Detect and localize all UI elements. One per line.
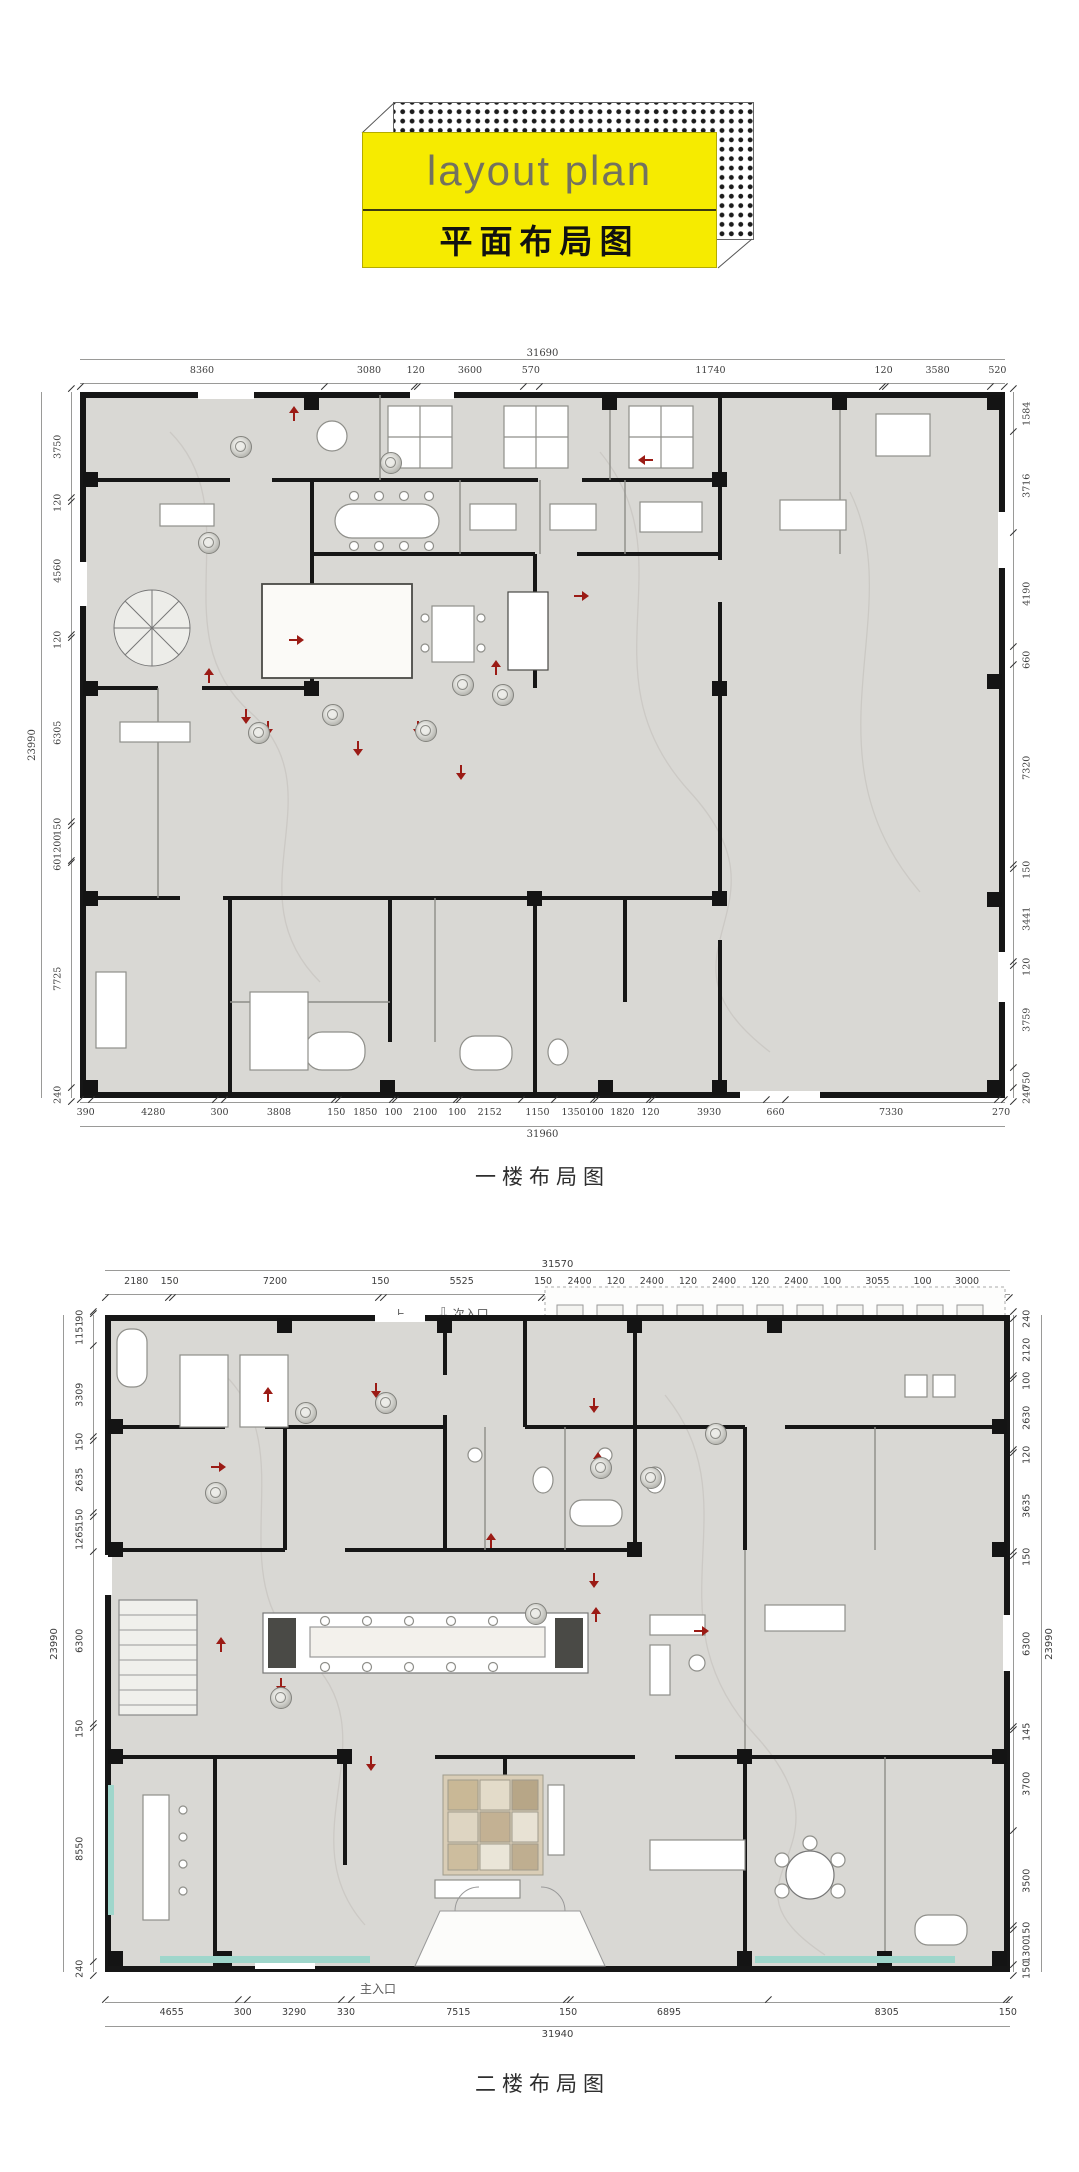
dimension-segment: 150 <box>1006 2003 1010 2025</box>
dim-total-value: 23990 <box>50 1628 60 1660</box>
dimension-segment: 150 <box>1014 1968 1040 1972</box>
dimension-segment: 300 <box>215 1103 224 1125</box>
dim-total-value: 23990 <box>1045 1628 1055 1660</box>
dim-total-top: 31570 <box>105 1254 1010 1271</box>
dimension-segment: 660 <box>1014 650 1040 668</box>
plant-icon <box>452 674 474 696</box>
dimension-value: 1265 <box>75 1525 85 1549</box>
dimension-segment: 300 <box>238 2003 247 2025</box>
dimension-segment: 1584 <box>1014 392 1040 435</box>
dimension-segment: 3808 <box>224 1103 334 1125</box>
dimension-value: 2635 <box>75 1468 85 1492</box>
dimension-value: 3716 <box>1022 474 1032 498</box>
dimension-segment: 3930 <box>652 1103 766 1125</box>
dim-total-top: 31690 <box>80 343 1005 360</box>
flow-arrow-icon <box>490 660 502 676</box>
dimension-value: 520 <box>988 366 1006 376</box>
dimension-segment: 390 <box>80 1103 91 1125</box>
dimension-segment: 11740 <box>539 361 882 383</box>
dim-total-bottom: 31960 <box>80 1126 1005 1143</box>
dim-strip-bottom: 3904280300380815018501002100100215211501… <box>80 1102 1005 1125</box>
dimension-segment: 3500 <box>1014 1834 1040 1929</box>
dim-total-value: 31940 <box>542 2030 574 2040</box>
dimension-segment: 7330 <box>785 1103 997 1125</box>
dimension-value: 3309 <box>75 1382 85 1406</box>
plant-icon <box>270 1687 292 1709</box>
dim-total-value: 31690 <box>527 349 559 359</box>
dimension-segment: 3441 <box>1014 872 1040 966</box>
plant-icon <box>248 722 270 744</box>
dimension-value: 2120 <box>1022 1338 1032 1362</box>
dimension-value: 3808 <box>267 1108 291 1118</box>
dimension-value: 3441 <box>1022 906 1032 930</box>
dimension-segment: 570 <box>523 361 540 383</box>
first-floor-drawing <box>80 392 1005 1098</box>
dimension-value: 8305 <box>875 2008 899 2018</box>
dimension-value: 660 <box>1022 650 1032 668</box>
dimension-value: 4560 <box>53 559 63 583</box>
dimension-segment: 270 <box>997 1103 1005 1125</box>
dimension-segment: 240 <box>67 1965 93 1972</box>
plant-icon <box>640 1467 662 1489</box>
dimension-segment: 7320 <box>1014 668 1040 867</box>
dim-strip-right: 2402120100263012036351506300145370035001… <box>1013 1315 1040 1972</box>
flow-arrow-icon <box>573 590 589 602</box>
dimension-segment: 8360 <box>80 361 324 383</box>
dimension-segment: 2630 <box>1014 1382 1040 1453</box>
dimension-value: 7320 <box>1022 756 1032 780</box>
plant-icon <box>230 436 252 458</box>
dimension-value: 1151 <box>75 1321 85 1345</box>
flow-arrow-icon <box>215 1637 227 1653</box>
dimension-value: 8360 <box>190 366 214 376</box>
dimension-value: 3500 <box>1022 1869 1032 1893</box>
dim-strip-left: 3750120456012063051501200607725240 <box>45 392 72 1098</box>
dimension-segment: 7725 <box>45 866 71 1091</box>
flow-arrow-icon <box>588 1397 600 1413</box>
plant-icon <box>205 1482 227 1504</box>
plant-icon <box>492 684 514 706</box>
plant-icon <box>525 1603 547 1625</box>
dimension-value: 3635 <box>1022 1493 1032 1517</box>
dimension-value: 8550 <box>75 1836 85 1860</box>
dimension-segment: 3635 <box>1014 1456 1040 1555</box>
flow-arrow-icon <box>693 1625 709 1637</box>
dimension-value: 3290 <box>282 2008 306 2018</box>
dimension-value: 3750 <box>53 435 63 459</box>
dimension-segment: 4560 <box>45 505 71 638</box>
dimension-value: 6895 <box>657 2008 681 2018</box>
dimension-segment: 3309 <box>67 1349 93 1440</box>
dimension-segment: 4655 <box>105 2003 238 2025</box>
dimension-value: 11740 <box>695 366 725 376</box>
dim-total-left: 23990 <box>25 392 42 1098</box>
dimension-segment: 6895 <box>570 2003 768 2025</box>
dimension-value: 270 <box>992 1108 1010 1118</box>
dim-total-bottom: 31940 <box>105 2026 1010 2043</box>
rug-display <box>443 1775 543 1875</box>
title-english: layout plan <box>363 133 716 209</box>
first-floor-plan: 31690 836030801203600570117401203580520 … <box>25 295 1060 1210</box>
dimension-segment: 1150 <box>521 1103 554 1125</box>
dimension-value: 3700 <box>1022 1772 1032 1796</box>
flow-arrow-icon <box>485 1533 497 1549</box>
title-banner: layout plan 平面布局图 <box>362 132 717 268</box>
flow-arrow-icon <box>590 1607 602 1623</box>
dim-total-left: 23990 <box>47 1315 64 1972</box>
dimension-value: 2100 <box>413 1108 437 1118</box>
dimension-segment: 6300 <box>67 1555 93 1728</box>
flow-arrow-icon <box>288 634 304 646</box>
dimension-value: 240 <box>53 1085 63 1103</box>
flow-arrow-icon <box>210 1461 226 1473</box>
dimension-segment: 1151 <box>67 1317 93 1349</box>
spiral-stair <box>114 590 190 666</box>
second-floor-drawing <box>105 1283 1010 1975</box>
dimension-segment: 240 <box>45 1091 71 1098</box>
dimension-value: 7515 <box>446 2008 470 2018</box>
main-entrance-label: 主入口 <box>360 1980 396 1997</box>
dimension-segment: 2100 <box>395 1103 456 1125</box>
title-chinese: 平面布局图 <box>363 211 716 267</box>
dimension-segment: 330 <box>341 2003 350 2025</box>
dimension-segment: 7515 <box>351 2003 566 2025</box>
dim-total-value: 23990 <box>28 729 38 761</box>
dimension-value: 3600 <box>458 366 482 376</box>
dimension-segment: 3080 <box>324 361 414 383</box>
dimension-value: 150 <box>999 2008 1017 2018</box>
dimension-segment: 2152 <box>459 1103 521 1125</box>
flow-arrow-icon <box>352 740 364 756</box>
dim-strip-right: 158437164190660732015034411203759750240 <box>1013 392 1040 1098</box>
dimension-segment: 3759 <box>1014 969 1040 1071</box>
dimension-value: 240 <box>1022 1086 1032 1104</box>
plant-icon <box>415 720 437 742</box>
dimension-value: 6300 <box>1022 1632 1032 1656</box>
dimension-value: 1820 <box>610 1108 634 1118</box>
plant-icon <box>198 532 220 554</box>
dimension-segment: 6305 <box>45 641 71 825</box>
plant-icon <box>380 452 402 474</box>
dimension-segment: 2635 <box>67 1444 93 1516</box>
dimension-segment: 3600 <box>417 361 522 383</box>
dimension-value: 3580 <box>925 366 949 376</box>
dimension-value: 1150 <box>525 1108 549 1118</box>
dimension-value: 1300 <box>1022 1938 1032 1962</box>
dimension-value: 2630 <box>1022 1405 1032 1429</box>
flow-arrow-icon <box>262 1387 274 1403</box>
second-floor-svg <box>105 1283 1010 1975</box>
dimension-segment: 3750 <box>45 392 71 501</box>
flow-arrow-icon <box>588 1572 600 1588</box>
flow-arrow-icon <box>288 406 300 422</box>
dimension-segment: 660 <box>766 1103 785 1125</box>
second-floor-caption: 二楼布局图 <box>25 2068 1060 2098</box>
dimension-value: 1584 <box>1022 401 1032 425</box>
dimension-segment: 6300 <box>1014 1559 1040 1730</box>
dim-total-right: 23990 <box>1041 1315 1058 1972</box>
second-floor-plan: 31570 2180150720015055251502400120240012… <box>25 1250 1060 2172</box>
dim-total-value: 31960 <box>527 1130 559 1140</box>
first-floor-svg <box>80 392 1005 1098</box>
dimension-value: 7330 <box>879 1108 903 1118</box>
dimension-segment: 520 <box>990 361 1005 383</box>
dim-total-value: 31570 <box>542 1260 574 1270</box>
dimension-segment: 8550 <box>67 1731 93 1965</box>
dimension-segment: 3716 <box>1014 435 1040 536</box>
dimension-segment: 3700 <box>1014 1733 1040 1833</box>
dimension-value: 240 <box>75 1960 85 1978</box>
dimension-value: 2152 <box>478 1108 502 1118</box>
dimension-segment: 8305 <box>768 2003 1006 2025</box>
dim-strip-bottom: 46553003290330751515068958305150 <box>105 2002 1010 2025</box>
main-entrance-text: 主入口 <box>360 1982 396 1996</box>
dimension-segment: 3580 <box>885 361 990 383</box>
dimension-value: 6300 <box>75 1629 85 1653</box>
first-floor-caption: 一楼布局图 <box>25 1161 1060 1191</box>
flow-arrow-icon <box>240 708 252 724</box>
dimension-value: 1200 <box>53 835 63 859</box>
stair <box>119 1600 197 1715</box>
dimension-value: 1850 <box>353 1108 377 1118</box>
layout-plan-sheet: layout plan 平面布局图 31690 8360308012036005… <box>0 0 1079 2172</box>
flow-arrow-icon <box>455 764 467 780</box>
dimension-segment: 4280 <box>91 1103 215 1125</box>
plant-icon <box>322 704 344 726</box>
dimension-value: 150 <box>1022 1961 1032 1979</box>
plant-icon <box>705 1423 727 1445</box>
dim-strip-top: 836030801203600570117401203580520 <box>80 361 1005 384</box>
dimension-segment: 2120 <box>1014 1322 1040 1379</box>
plant-icon <box>295 1402 317 1424</box>
dim-strip-left: 90115133091502635150126563001508550240 <box>67 1315 94 1972</box>
dimension-value: 570 <box>522 366 540 376</box>
dimension-value: 3930 <box>697 1108 721 1118</box>
plant-icon <box>375 1392 397 1414</box>
flow-arrow-icon <box>365 1755 377 1771</box>
dimension-segment: 3290 <box>247 2003 341 2025</box>
dimension-value: 3759 <box>1022 1008 1032 1032</box>
flow-arrow-icon <box>638 454 654 466</box>
dimension-value: 4280 <box>141 1108 165 1118</box>
plant-icon <box>590 1457 612 1479</box>
dimension-segment: 1265 <box>67 1520 93 1555</box>
dimension-value: 660 <box>766 1108 784 1118</box>
dimension-value: 4655 <box>160 2008 184 2018</box>
flow-arrow-icon <box>203 668 215 684</box>
dimension-value: 7725 <box>53 966 63 990</box>
dimension-value: 3080 <box>357 366 381 376</box>
dimension-value: 4190 <box>1022 581 1032 605</box>
dimension-segment: 4190 <box>1014 536 1040 650</box>
dimension-value: 1350 <box>562 1108 586 1118</box>
dimension-value: 6305 <box>53 721 63 745</box>
dimension-segment: 240 <box>1014 1091 1040 1098</box>
